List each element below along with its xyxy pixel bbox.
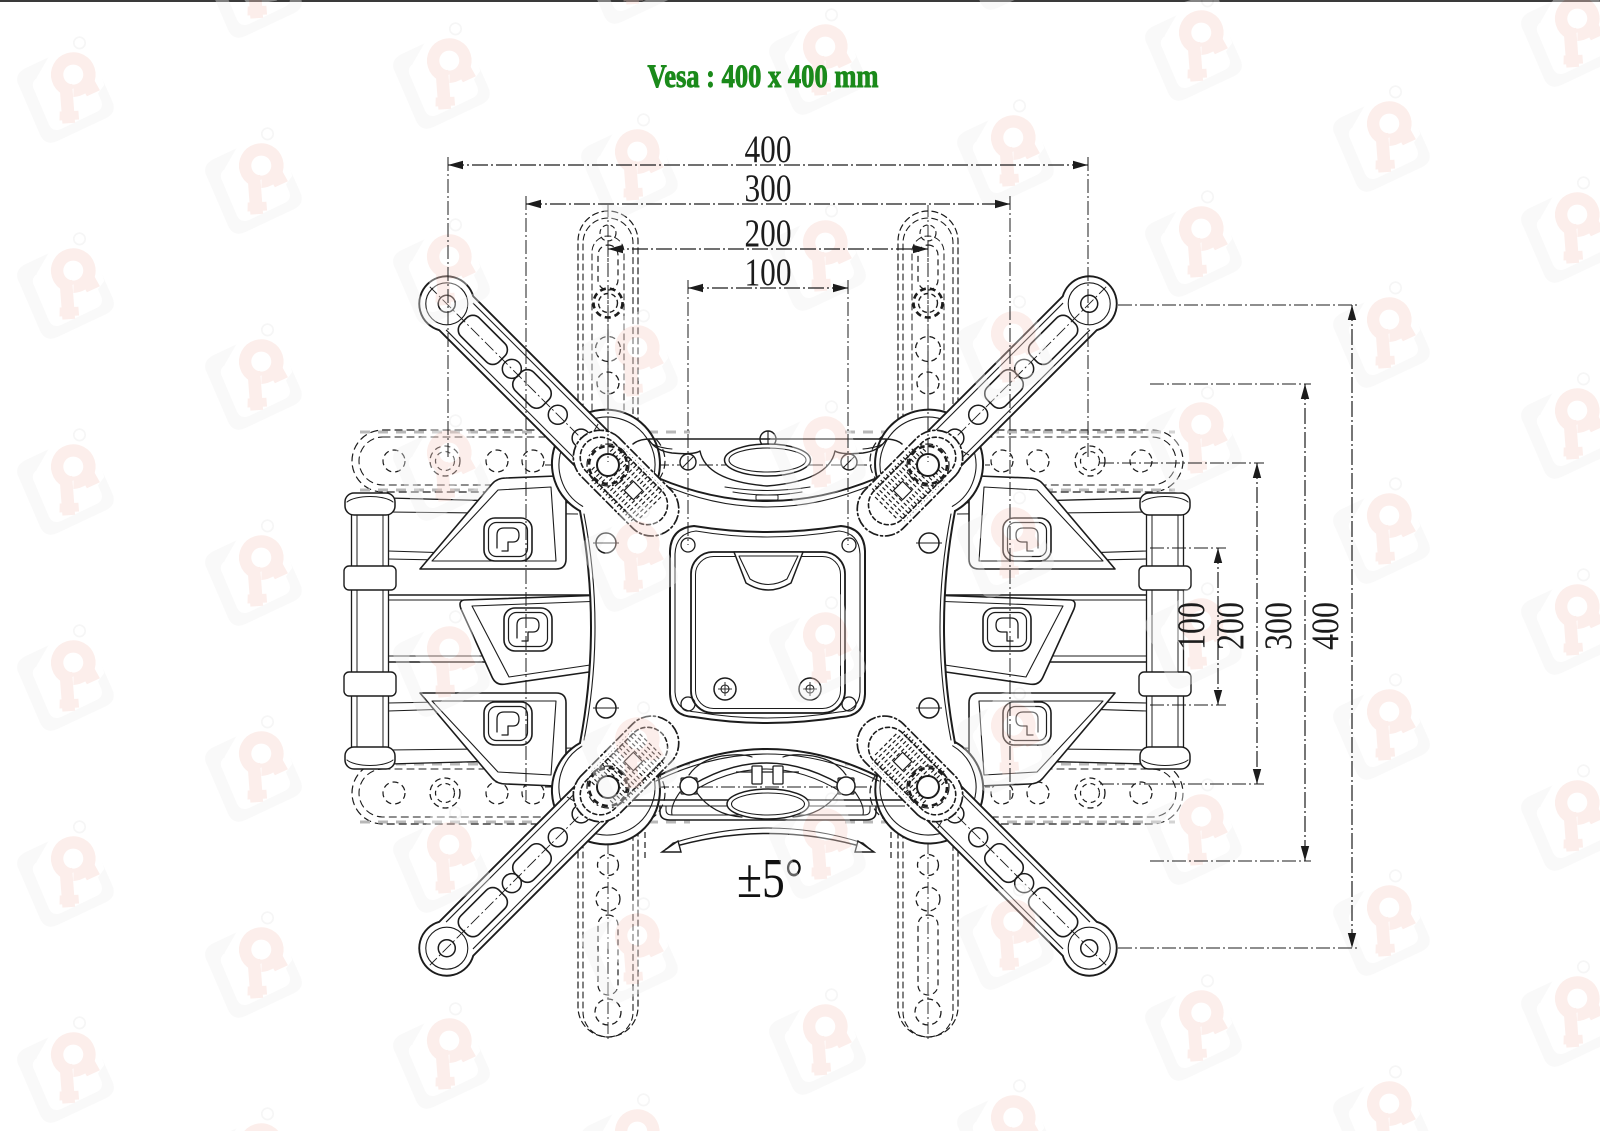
svg-text:100: 100 (1170, 602, 1213, 650)
svg-text:300: 300 (1257, 602, 1300, 650)
svg-text:400: 400 (745, 128, 792, 171)
svg-text:200: 200 (1209, 602, 1252, 650)
svg-text:400: 400 (1304, 602, 1347, 650)
svg-text:Vesa : 400 x 400 mm: Vesa : 400 x 400 mm (648, 59, 879, 95)
svg-text:200: 200 (745, 212, 792, 255)
svg-text:300: 300 (745, 167, 792, 210)
svg-text:100: 100 (745, 251, 792, 294)
